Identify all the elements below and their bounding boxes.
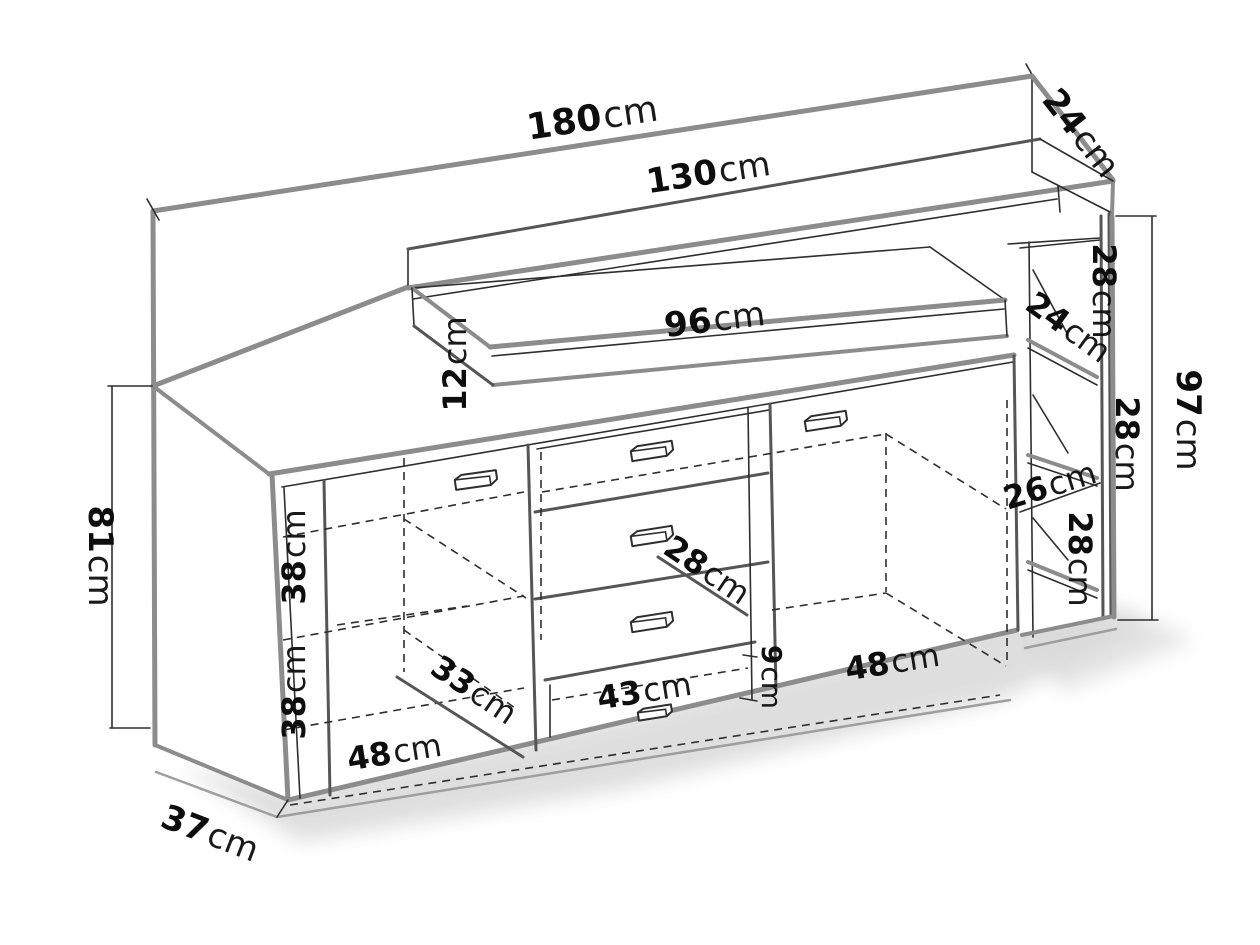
dim-cabinet-height: 81cm xyxy=(80,505,120,606)
dim-shelf-gap-lower: 38cm xyxy=(275,644,313,739)
furniture-dimension-drawing: 180cm 130cm 24cm 96cm 12cm 28cm 24cm 28c… xyxy=(0,0,1260,945)
dim-cubby-bottom-height: 28cm xyxy=(1061,511,1099,606)
dim-cubby-mid-height: 28cm xyxy=(1108,396,1146,491)
dim-shelf-height: 12cm xyxy=(436,316,474,411)
dim-bottom-drawer-height: 9cm xyxy=(755,645,788,709)
diagram-canvas: 180cm 130cm 24cm 96cm 12cm 28cm 24cm 28c… xyxy=(0,0,1260,945)
dim-total-height-right: 97cm xyxy=(1168,369,1208,470)
dim-shelf-gap-upper: 38cm xyxy=(275,509,313,604)
